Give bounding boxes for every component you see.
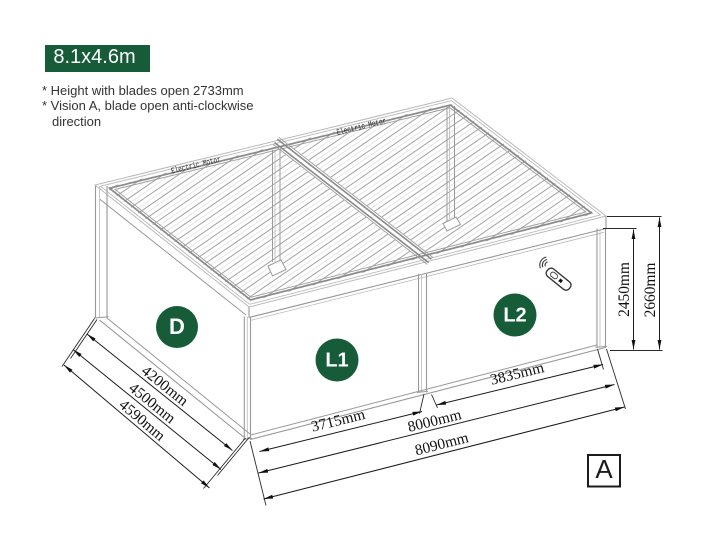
svg-text:A: A [595, 454, 613, 484]
svg-text:3835mm: 3835mm [489, 359, 546, 388]
svg-text:2660mm: 2660mm [642, 263, 659, 318]
svg-text:Electric Motor: Electric Motor [336, 117, 387, 138]
svg-text:2450mm: 2450mm [616, 262, 633, 317]
svg-text:3715mm: 3715mm [310, 406, 367, 436]
svg-text:D: D [169, 314, 185, 339]
svg-text:L1: L1 [325, 349, 348, 371]
svg-text:L2: L2 [503, 304, 526, 326]
svg-text:8090mm: 8090mm [413, 429, 470, 459]
